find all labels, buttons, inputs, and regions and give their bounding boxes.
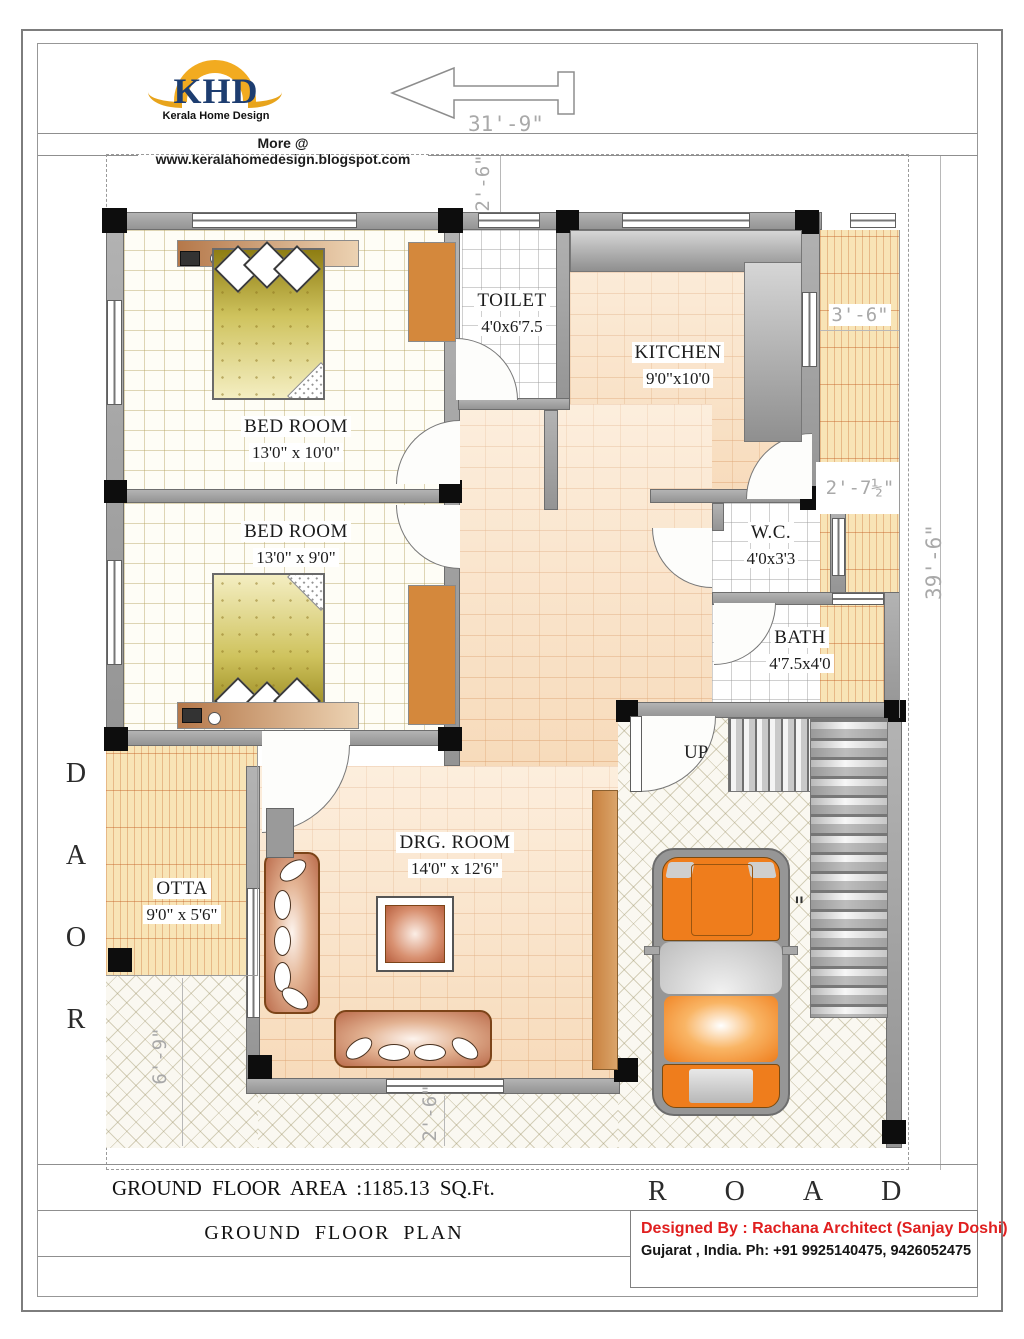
wall-porch-right (886, 716, 902, 1148)
column (882, 1120, 906, 1144)
room-name: BED ROOM (241, 521, 351, 542)
road-label-bottom: ROAD (648, 1176, 959, 1208)
room-name: DRG. ROOM (396, 832, 513, 853)
room-name: KITCHEN (632, 342, 725, 363)
room-label-bath: BATH 4'7.5x4'0 (730, 625, 870, 676)
nightstand (180, 251, 200, 266)
footer-rule-1 (38, 1164, 978, 1165)
room-label-toilet: TOILET 4'0x6'7.5 (440, 288, 584, 339)
wall-opening (262, 731, 350, 745)
sofa (264, 852, 320, 1014)
strip-edge-line (899, 230, 900, 718)
car-hood (662, 857, 780, 941)
staircase-lower-flight (728, 718, 812, 792)
window (802, 292, 817, 367)
car-roof (664, 996, 778, 1062)
window (850, 213, 896, 228)
room-name: W.C. (748, 522, 794, 543)
room-size: 13'0" x 10'0" (249, 443, 343, 462)
dim-left-front: 6'-9" (128, 1045, 192, 1065)
car-mirror-left (644, 946, 660, 955)
clock (208, 712, 221, 725)
dim-bottom-setback: 2'-6" (398, 1102, 462, 1122)
wall-passage-stub (544, 410, 558, 510)
room-label-kitchen: KITCHEN 9'0"x10'0 (588, 340, 768, 391)
nightstand (182, 708, 202, 723)
floor-plan-page: KHD Kerala Home Design More @ www.kerala… (0, 0, 1024, 1339)
column (108, 948, 132, 972)
car (652, 848, 790, 1116)
window (622, 213, 750, 228)
wardrobe (408, 585, 456, 725)
room-name: OTTA (153, 878, 210, 899)
room-name: TOILET (474, 290, 549, 311)
dim-top-setback: 2'-6" (448, 172, 518, 192)
window (386, 1079, 504, 1093)
room-label-wc: W.C. 4'0x3'3 (706, 520, 836, 571)
room-name: BATH (771, 627, 829, 648)
wall-left (106, 212, 124, 746)
stray-inch-mark: " (792, 892, 806, 920)
column (104, 480, 127, 503)
room-name: BED ROOM (241, 416, 351, 437)
wall-bed-divider (106, 489, 462, 503)
dim-right-height: 39'-6" (892, 550, 976, 574)
dim-top-width: 31'-9" (468, 112, 544, 136)
logo-text: KHD (146, 70, 286, 112)
plan-title: GROUND FLOOR PLAN (38, 1222, 630, 1245)
road-letter: A (66, 840, 86, 872)
column (248, 1055, 272, 1079)
footer-rule-3 (38, 1256, 630, 1257)
drg-side-wall-panel (592, 790, 618, 1070)
window (107, 300, 122, 405)
entrance-door-leaf (630, 716, 642, 792)
window (832, 593, 884, 605)
room-size: 9'0"x10'0 (643, 369, 713, 388)
column (438, 208, 463, 233)
column (102, 208, 127, 233)
column (438, 727, 462, 751)
road-label-left: R O A D (58, 758, 94, 1036)
dim-right-strip: 3'-6" (820, 304, 900, 326)
dim-right-offset: 2'-7½" (816, 462, 904, 514)
logo-subtext: Kerala Home Design (146, 110, 286, 122)
room-size: 14'0" x 12'6" (408, 859, 502, 878)
room-size: 4'7.5x4'0 (766, 654, 833, 673)
coffee-table (376, 896, 454, 972)
tv-unit (266, 808, 294, 858)
room-label-drg: DRG. ROOM 14'0" x 12'6" (345, 830, 565, 881)
column (104, 727, 128, 751)
dimline-right-strip (820, 330, 900, 331)
road-letter: D (66, 758, 86, 790)
designer-credit-line2: Gujarat , India. Ph: +91 9925140475, 942… (641, 1243, 969, 1259)
road-letter: O (66, 922, 86, 954)
room-size: 9'0" x 5'6" (143, 905, 220, 924)
ground-floor-area: GROUND FLOOR AREA :1185.13 SQ.Ft. (112, 1176, 495, 1201)
designer-credit-box: Designed By : Rachana Architect (Sanjay … (630, 1210, 978, 1288)
room-size: 4'0x3'3 (744, 549, 799, 568)
window (107, 560, 122, 665)
room-label-bedroom1: BED ROOM 13'0" x 10'0" (186, 414, 406, 465)
room-size: 4'0x6'7.5 (478, 317, 545, 336)
car-windshield (660, 942, 782, 994)
room-label-bedroom2: BED ROOM 13'0" x 9'0" (186, 519, 406, 570)
otta-edge-line (257, 746, 258, 976)
khd-logo: KHD Kerala Home Design (146, 58, 286, 132)
room-size: 13'0" x 9'0" (253, 548, 339, 567)
road-letter: R (67, 1004, 86, 1036)
up-label: UP (684, 742, 708, 764)
yard-edge-line (106, 975, 258, 976)
window (478, 213, 540, 228)
car-mirror-right (782, 946, 798, 955)
designer-credit-line1: Designed By : Rachana Architect (Sanjay … (641, 1220, 969, 1238)
otta-floor (106, 746, 258, 976)
bed-headboard (177, 702, 359, 729)
window (192, 213, 357, 228)
staircase-upper-flight (810, 718, 888, 1018)
room-label-otta: OTTA 9'0" x 5'6" (92, 876, 272, 927)
dimline-right-height (940, 156, 941, 1170)
car-trunk (662, 1064, 780, 1108)
sofa (334, 1010, 492, 1068)
